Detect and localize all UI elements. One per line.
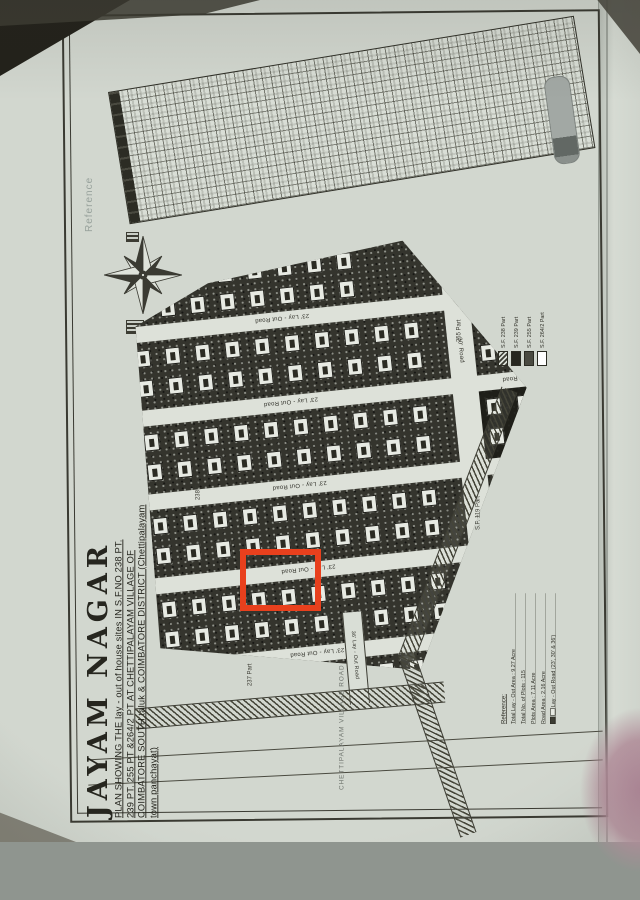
highlighted-plot-marker <box>240 549 321 611</box>
photo-finger-blur <box>560 680 640 900</box>
plot-chip <box>347 358 364 376</box>
plot-chip <box>287 364 304 382</box>
plot-chip <box>385 438 402 456</box>
legend-swatch <box>498 351 508 366</box>
plot-chip <box>403 321 420 339</box>
plot-chip <box>364 525 381 543</box>
plot-chip <box>373 325 390 343</box>
reference-heading: Reference: <box>500 634 507 724</box>
boundary-label-238: 238 Part <box>194 478 201 500</box>
plot-chip <box>376 354 393 372</box>
plot-chip <box>224 624 241 642</box>
plot-chip <box>284 334 301 352</box>
reference-line: Total Lay - Out Area : 9.27 Acre <box>510 593 516 724</box>
plot-chip <box>164 347 181 365</box>
legend-swatch <box>524 351 534 366</box>
plot-chip <box>203 427 220 445</box>
legend-item: S.F. 264/2 Part <box>535 271 548 366</box>
legend-item: S.F. 239 Part <box>509 271 522 366</box>
reference-line-text: Total Lay - Out Area : 9.27 Acre <box>510 649 516 724</box>
plot-chip <box>221 594 238 612</box>
legend-swatch <box>537 351 547 366</box>
plot-chip <box>224 340 241 358</box>
plot-chip <box>212 510 229 528</box>
plot-chip <box>361 495 378 513</box>
plot-chip <box>343 328 360 346</box>
plot-chip <box>415 435 432 453</box>
plot-chip <box>182 514 199 532</box>
plot-chip <box>394 521 411 539</box>
plot-chip <box>173 430 190 448</box>
plot-chip <box>338 280 355 298</box>
plot-chip <box>412 405 429 423</box>
legend-label: S.F. 255 Part <box>526 317 532 348</box>
plot-chip <box>254 337 271 355</box>
compass-top-mark <box>126 232 139 242</box>
plot-chip <box>301 501 318 519</box>
legend-swatch <box>511 351 521 366</box>
plot-chip <box>168 376 185 394</box>
plot-chip <box>400 575 417 593</box>
plot-chip <box>406 351 423 369</box>
plot-chip <box>242 507 259 525</box>
plot-chip <box>236 454 253 472</box>
plot-chip <box>322 414 339 432</box>
plot-chip <box>185 543 202 561</box>
plot-chip <box>194 627 211 645</box>
legend-item: S.F. 238 Part <box>496 271 509 366</box>
plot-chip <box>254 621 271 639</box>
plot-chip <box>296 447 313 465</box>
reference-road-swatch <box>550 708 555 715</box>
legend: S.F. 238 PartS.F. 239 PartS.F. 255 PartS… <box>496 271 548 366</box>
plot-chip <box>352 411 369 429</box>
plot-chip <box>309 283 326 301</box>
plot-chip <box>355 441 372 459</box>
plot-chip <box>340 581 357 599</box>
plot-chip <box>219 293 236 311</box>
title-subtitle-line: PLAN SHOWING THE lay - out of house site… <box>114 348 125 818</box>
plot-chip <box>317 361 334 379</box>
plot-chip <box>215 540 232 558</box>
reference-line: Total No. of Plots : 115 <box>520 593 526 724</box>
plot-chip <box>382 408 399 426</box>
scanned-layout-plan-photo: Reference 23' Lay - Out Road23' Lay - O <box>0 0 640 842</box>
boundary-label-sf119: S.F. 119 Part <box>474 496 481 530</box>
plot-chip <box>373 608 390 626</box>
title-subtitle-line: COIMBATORE SOUTH taluk & COIMBATORE DIST… <box>137 348 148 818</box>
plot-chip <box>206 457 223 475</box>
plot-chip <box>326 444 343 462</box>
plot-chip <box>314 331 331 349</box>
plot-chip <box>189 296 206 314</box>
plot-chip <box>313 614 330 632</box>
boundary-label-255: 255 Part <box>455 320 462 342</box>
plot-chip <box>293 418 310 436</box>
village-road-label: CHETTIPALAYAM VILLAGE ROAD <box>338 670 345 790</box>
title-block: JAYAM NAGAR PLAN SHOWING THE lay - out o… <box>84 313 160 818</box>
plot-chip <box>257 367 274 385</box>
plot-chip <box>336 252 353 270</box>
plot-chip <box>334 528 351 546</box>
plot-chip <box>331 498 348 516</box>
road-36ft-label: 36' Lay - Out Road <box>350 627 361 683</box>
reference-block: Reference: Total Lay - Out Area : 9.27 A… <box>500 592 560 724</box>
legend-label: S.F. 264/2 Part <box>539 312 545 348</box>
legend-label: S.F. 239 Part <box>513 317 519 348</box>
reference-road-swatch <box>550 717 555 724</box>
plot-chip <box>266 450 283 468</box>
legend-item: S.F. 255 Part <box>522 271 535 366</box>
table-side-label: Reference <box>84 142 95 232</box>
reference-line-text: Lay - Out Road (23', 30' & 36') <box>550 635 556 707</box>
plot-chip <box>176 460 193 478</box>
plot-chip <box>305 531 322 549</box>
plot-chip <box>391 492 408 510</box>
plot-chip <box>272 504 289 522</box>
plot-chip <box>424 518 441 536</box>
legend-label: S.F. 238 Part <box>500 317 506 348</box>
plan-title: JAYAM NAGAR <box>84 313 114 818</box>
plot-chip <box>161 600 178 618</box>
plot-chip <box>370 578 387 596</box>
plot-chip <box>279 286 296 304</box>
plot-chip <box>283 618 300 636</box>
plot-chip <box>164 630 181 648</box>
reference-line-text: Plots Area : 7.11 Acre <box>530 672 536 724</box>
plot-chip <box>191 597 208 615</box>
boundary-label-237: 237 Part <box>246 664 253 686</box>
plot-chip <box>249 289 266 307</box>
reference-line: Road Area : 2.16 Acre <box>540 593 546 724</box>
plot-chip <box>197 373 214 391</box>
plot-chip <box>421 489 438 507</box>
reference-line-text: Total No. of Plots : 115 <box>520 670 526 724</box>
reference-line: Plots Area : 7.11 Acre <box>530 593 536 724</box>
title-subtitle-line: town panchayat) <box>149 348 160 818</box>
reference-line: Lay - Out Road (23', 30' & 36') <box>550 593 556 724</box>
title-subtitle-line: 239 PT. 255 PT &264/2 PT AT CHETTIPALAYA… <box>126 348 137 818</box>
plot-chip <box>227 370 244 388</box>
compass-rose-icon <box>102 234 184 316</box>
plot-chip <box>194 343 211 361</box>
plot-chip <box>233 424 250 442</box>
plot-chip <box>263 421 280 439</box>
reference-line-text: Road Area : 2.16 Acre <box>540 671 546 724</box>
